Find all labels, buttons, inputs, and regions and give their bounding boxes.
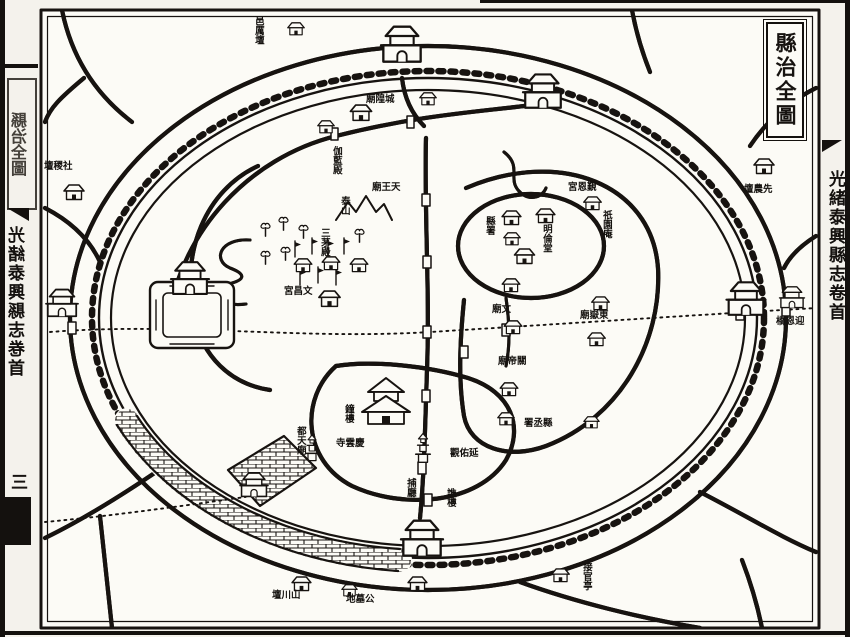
left-margin-ink-block <box>5 497 31 545</box>
left-margin-spine-text: 光緒泰興縣志卷首 <box>6 226 34 378</box>
left-margin-rule <box>0 64 38 68</box>
map-label-qing-yun-si: 寺雲慶 <box>336 440 365 450</box>
left-margin-fishtail-mark <box>7 208 29 221</box>
left-margin-page-number: 三 <box>11 468 28 493</box>
map-label-bu-ting: 捕廳 <box>404 478 414 497</box>
map-label-zhong-lou: 鐘樓 <box>342 404 352 423</box>
map-label-ming-lun-tang: 明倫堂 <box>540 224 550 253</box>
right-margin-fishtail-mark <box>822 140 842 152</box>
map-label-xian-cheng-shu: 署丞縣 <box>524 420 553 430</box>
map-label-dong-yue-miao: 廟嶽東 <box>580 312 609 322</box>
map-label-xian-nong-tan: 壇農先 <box>744 186 773 196</box>
map-label-wen-chang-gong: 宮昌文 <box>284 288 313 298</box>
map-label-shan-chuan-tan: 壇川山 <box>272 592 301 602</box>
map-label-yi-li-tan: 邑厲壇 <box>252 16 262 45</box>
map-label-qi-yuan-an: 祇園庵 <box>600 210 610 239</box>
map-label-cheng-huang-miao: 廟隍城 <box>366 96 395 106</box>
map-label-tian-wang-miao: 廟王天 <box>372 184 401 194</box>
map-label-ying-en-qiao: 橋恩迎 <box>776 318 805 328</box>
map-label-yan-you-guan: 觀佑延 <box>450 450 479 460</box>
map-title-cartouche: 縣治全圖 <box>766 22 804 138</box>
map-label-qie-lan-dian: 伽藍殿 <box>330 146 340 175</box>
map-label-tai-shan: 泰山 <box>338 196 348 215</box>
map-label-xian-shu: 縣署 <box>483 216 493 235</box>
right-margin-spine-text: 光緒泰興縣志卷首 <box>827 170 848 322</box>
map-label-guan-di-miao: 廟帝關 <box>498 358 527 368</box>
map-label-gong-mu-di: 地墓公 <box>346 596 375 606</box>
map-label-jie-guan-ting: 接官亭 <box>580 562 590 591</box>
map-label-wen-miao: 廟文 <box>492 306 511 316</box>
map-canvas <box>0 0 850 637</box>
map-label-san-mao-dian: 三茅殿 <box>318 228 328 257</box>
gazetteer-page: 邑厲壇 壇稷社 壇農先 壇川山 地墓公 接官亭 橋恩迎 廟隍城 伽藍殿 廟王天 … <box>0 0 850 637</box>
map-label-she-ji-tan: 壇稷社 <box>44 163 73 173</box>
left-margin-title-box: 縣治全圖 <box>7 78 37 210</box>
map-label-du-tian-miao: 都天廟 <box>294 426 304 455</box>
map-label-qiao-lou: 譙樓 <box>444 488 454 507</box>
map-label-jin-en-gong: 宮恩覲 <box>568 184 597 194</box>
